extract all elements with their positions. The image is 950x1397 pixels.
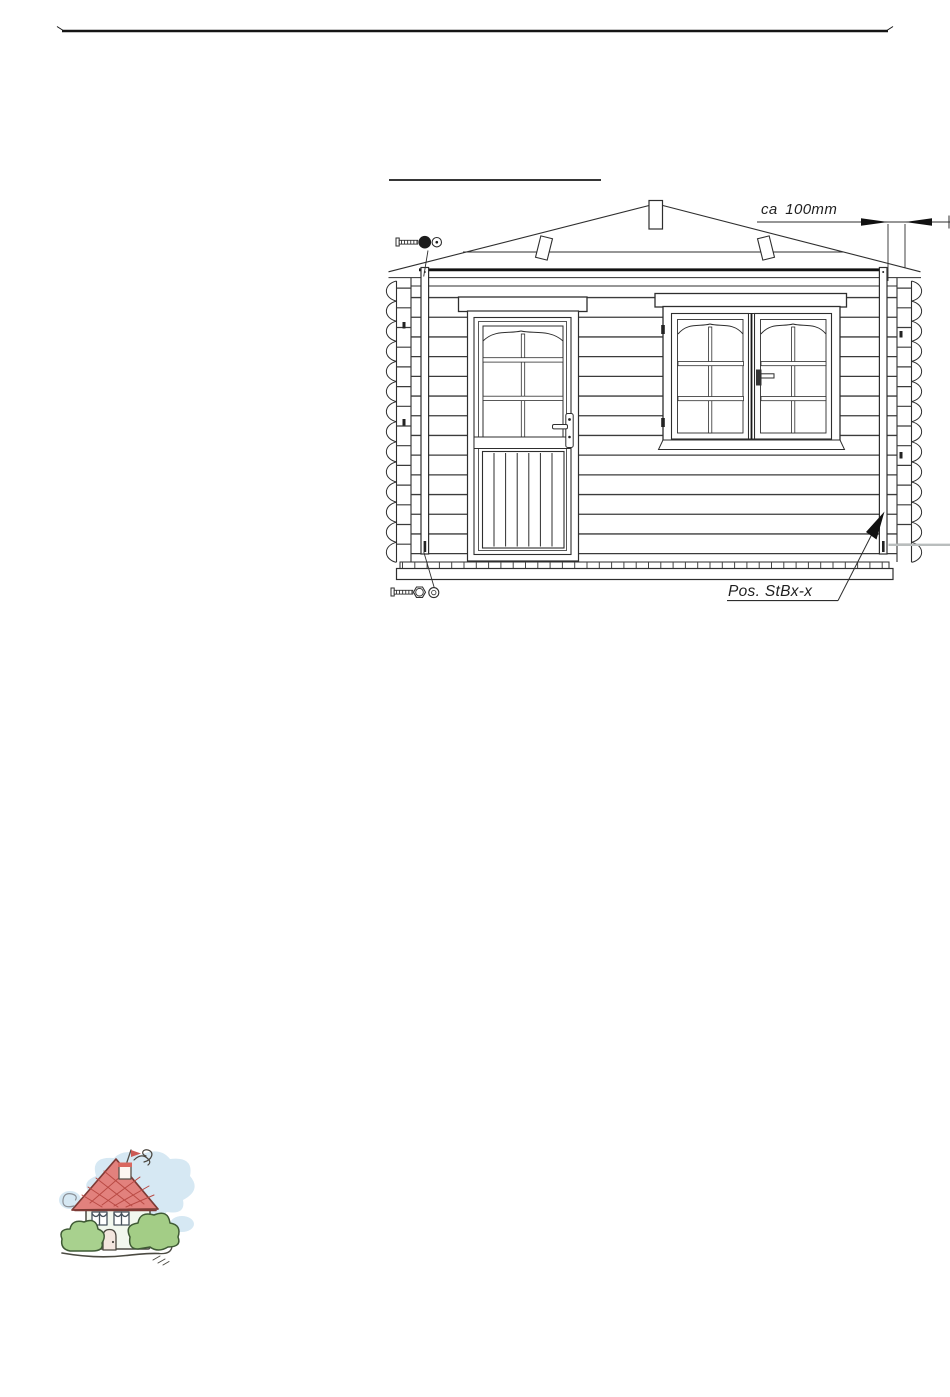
dimension-label: ca 100mm — [761, 201, 837, 218]
double-window — [655, 294, 847, 450]
screw-icon-bottom — [391, 552, 439, 598]
window-header-board — [655, 294, 847, 308]
clipart-door — [103, 1230, 116, 1251]
hip-board-right — [758, 236, 775, 260]
entrance-door — [459, 297, 588, 561]
window-hinge-icon — [661, 418, 665, 427]
floor-base — [397, 562, 894, 580]
storm-batten-right — [879, 268, 887, 555]
hip-board-left — [536, 236, 553, 260]
window-sill — [659, 440, 845, 450]
dimension-arrowhead-left — [861, 218, 888, 226]
house-clipart — [56, 1146, 204, 1276]
door-header-board — [459, 297, 588, 312]
roof-apex-block — [649, 201, 663, 230]
dimension-arrowhead-right — [905, 218, 932, 226]
window-hinge-icon — [661, 325, 665, 334]
roof — [389, 201, 922, 278]
manual-page: ca 100mm Pos. StBx-x — [0, 0, 950, 1397]
page-header-rule — [57, 27, 893, 32]
corner-log-ends-left — [386, 281, 405, 562]
cabin-front-elevation — [386, 201, 921, 580]
position-label: Pos. StBx-x — [728, 583, 812, 601]
corner-log-ends-right — [900, 281, 922, 562]
technical-drawing — [0, 0, 950, 660]
storm-batten-left — [421, 268, 429, 555]
